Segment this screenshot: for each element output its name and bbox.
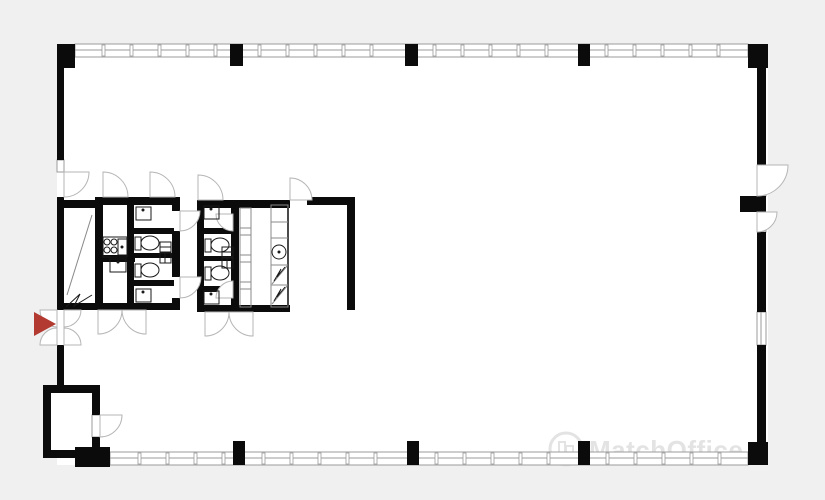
floorplan-image: MatchOffice: [0, 0, 825, 500]
bottom-window-mullion: [194, 453, 197, 464]
corner-top-left: [57, 44, 75, 68]
annex-wall-right-upper: [92, 385, 100, 415]
block-b-wall-left: [197, 208, 204, 305]
block-a-wall-internal: [127, 205, 134, 303]
bottom-window-mullion: [606, 453, 609, 464]
bottom-window-mullion: [262, 453, 265, 464]
bottom-window-mullion: [318, 453, 321, 464]
bottom-window-mullion: [634, 453, 637, 464]
floor-plan-svg: MatchOffice: [0, 0, 825, 500]
sink-drain-dot: [142, 209, 145, 212]
top-window-mullion: [370, 45, 373, 56]
sink-drain-dot: [117, 261, 120, 264]
block-b-wall-bottom: [197, 305, 290, 312]
top-window-mullion: [461, 45, 464, 56]
top-window-mullion: [689, 45, 692, 56]
bottom-window-mullion: [690, 453, 693, 464]
annex-wall-top: [43, 385, 100, 393]
right-wall-upper: [757, 66, 766, 165]
sink-drain-dot: [121, 246, 124, 249]
top-facade-pillar: [230, 44, 243, 66]
bottom-window-mullion: [718, 453, 721, 464]
bottom-window-mullion: [290, 453, 293, 464]
block-a-wall-top: [95, 197, 180, 205]
bottom-facade-pillar: [233, 441, 245, 465]
right-wall-lower: [757, 345, 766, 445]
bottom-window-mullion: [346, 453, 349, 464]
bottom-window-mullion: [463, 453, 466, 464]
sink-drain-dot: [210, 208, 213, 211]
top-facade-pillar: [578, 44, 590, 66]
bottom-window-mullion: [662, 453, 665, 464]
bottom-window-mullion: [138, 453, 141, 464]
top-window-mullion: [186, 45, 189, 56]
top-window-mullion: [286, 45, 289, 56]
top-window-mullion: [102, 45, 105, 56]
left-wall-lower: [57, 345, 64, 388]
top-window-mullion: [314, 45, 317, 56]
right-wall-middle: [757, 232, 766, 312]
toilet-bowl: [211, 238, 229, 252]
right-exit-door-swing: [757, 165, 788, 196]
bottom-window-mullion: [222, 453, 225, 464]
floor-drain-dot: [278, 251, 281, 254]
sink-drain-dot: [142, 291, 145, 294]
toilet-bowl: [141, 236, 159, 250]
top-window-mullion: [342, 45, 345, 56]
top-window-mullion: [214, 45, 217, 56]
bottom-window-mullion: [166, 453, 169, 464]
block-b-wall-top: [197, 200, 290, 208]
annex-wall-bottom: [43, 450, 100, 458]
block-a-wall-right: [172, 197, 180, 211]
left-wall-window-segment: [57, 160, 64, 172]
annex-wall-left: [43, 385, 51, 458]
annex-wall-right-lower: [92, 437, 100, 458]
top-window-mullion: [661, 45, 664, 56]
sink-drain-dot: [210, 293, 213, 296]
block-a-stall-divider: [134, 280, 174, 286]
bottom-facade-pillar: [407, 441, 419, 465]
block-a-wall-right: [172, 298, 180, 310]
top-window-mullion: [633, 45, 636, 56]
top-window-mullion: [717, 45, 720, 56]
toilet-bowl: [141, 263, 159, 277]
block-a-stall-divider: [134, 253, 174, 258]
bottom-facade-pillar: [578, 441, 590, 465]
bottom-window-mullion: [547, 453, 550, 464]
block-a-wall-bottom: [95, 303, 180, 310]
top-window-mullion: [130, 45, 133, 56]
block-a-stall-divider: [134, 228, 174, 234]
top-window-mullion: [489, 45, 492, 56]
annex-door-frame: [92, 415, 100, 437]
top-window-mullion: [258, 45, 261, 56]
right-exit-door-swing: [757, 212, 777, 232]
l-wall-vertical: [347, 197, 355, 310]
bottom-window-mullion: [435, 453, 438, 464]
bottom-window-mullion: [491, 453, 494, 464]
left-wall-upper: [57, 66, 64, 160]
left-wall-middle: [57, 197, 64, 310]
top-window-mullion: [517, 45, 520, 56]
bottom-window-mullion: [374, 453, 377, 464]
bottom-window-mullion: [519, 453, 522, 464]
top-window-mullion: [433, 45, 436, 56]
corner-bottom-right: [748, 442, 768, 465]
top-facade-pillar: [405, 44, 418, 66]
top-window-mullion: [605, 45, 608, 56]
corner-top-right: [748, 44, 768, 68]
top-window-mullion: [545, 45, 548, 56]
right-wall-nib: [740, 196, 766, 212]
top-window-mullion: [158, 45, 161, 56]
